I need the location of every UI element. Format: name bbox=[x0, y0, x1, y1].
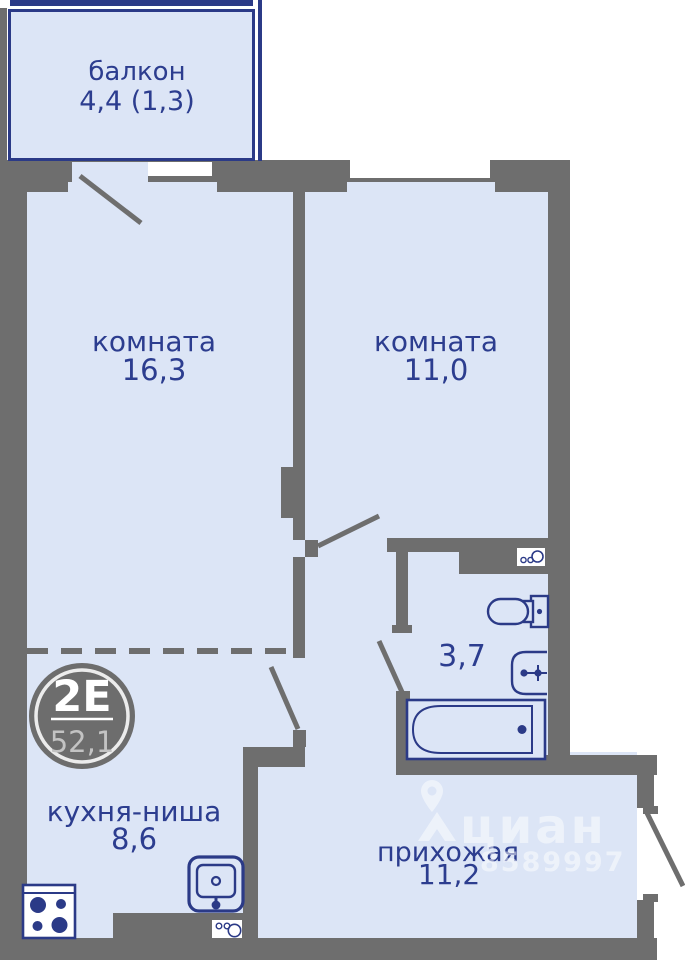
wall-hallway-right-lower bbox=[637, 900, 654, 938]
toilet-icon bbox=[488, 596, 548, 627]
wall-left-sliver bbox=[0, 8, 7, 163]
wall-middle-lower bbox=[293, 557, 305, 658]
room2-window bbox=[350, 153, 490, 178]
balcony-area: 4,4 (1,3) bbox=[79, 86, 195, 117]
badge-total-area: 52,1 bbox=[50, 725, 115, 759]
appliance-icon bbox=[212, 920, 242, 938]
floor-plan: 2Е 52,1 балкон 4,4 (1,3) комната 16,3 ко… bbox=[0, 0, 685, 960]
wall-washer-niche bbox=[459, 538, 570, 574]
wall-hallway-right-upper bbox=[637, 775, 654, 808]
balcony-label: балкон bbox=[88, 57, 185, 87]
wall-left bbox=[0, 160, 27, 950]
wall-kitchen-top bbox=[243, 747, 305, 767]
sink-icon bbox=[512, 652, 547, 694]
washing-machine-icon bbox=[517, 548, 545, 566]
kitchen-sink-icon bbox=[189, 857, 243, 911]
hallway-area: 11,2 bbox=[418, 858, 480, 891]
wall-right bbox=[548, 160, 570, 768]
wall-bottom bbox=[0, 938, 657, 960]
watermark-id: 8589997 bbox=[480, 847, 626, 878]
door-hinge-room2 bbox=[305, 540, 318, 557]
balcony-window bbox=[148, 162, 212, 176]
balcony-outer-rail bbox=[10, 0, 253, 6]
plan-type-badge: 2Е 52,1 bbox=[29, 663, 135, 769]
room1-area: 16,3 bbox=[122, 353, 187, 387]
floor-plan-page: 2Е 52,1 балкон 4,4 (1,3) комната 16,3 ко… bbox=[0, 0, 685, 960]
wall-bathroom-stub-cap bbox=[392, 625, 412, 633]
door-hinge-kitchen bbox=[293, 730, 306, 747]
bathtub-icon bbox=[407, 700, 545, 759]
room2-window-sill bbox=[347, 182, 495, 192]
wall-middle-pillar bbox=[281, 467, 293, 518]
door-hinge-entrance-top bbox=[643, 806, 658, 814]
bathroom-area: 3,7 bbox=[438, 639, 486, 674]
balcony-side-rail bbox=[258, 0, 262, 161]
wall-kitchen-side bbox=[243, 767, 258, 938]
wall-bathroom-left-stub bbox=[396, 552, 408, 625]
door-swing-entrance bbox=[647, 813, 683, 886]
room2-area: 11,0 bbox=[404, 353, 469, 387]
kitchen-area: 8,6 bbox=[111, 822, 157, 856]
stove-icon bbox=[23, 885, 75, 938]
wall-middle-upper bbox=[293, 192, 305, 540]
badge-plan-type: 2Е bbox=[52, 672, 111, 722]
